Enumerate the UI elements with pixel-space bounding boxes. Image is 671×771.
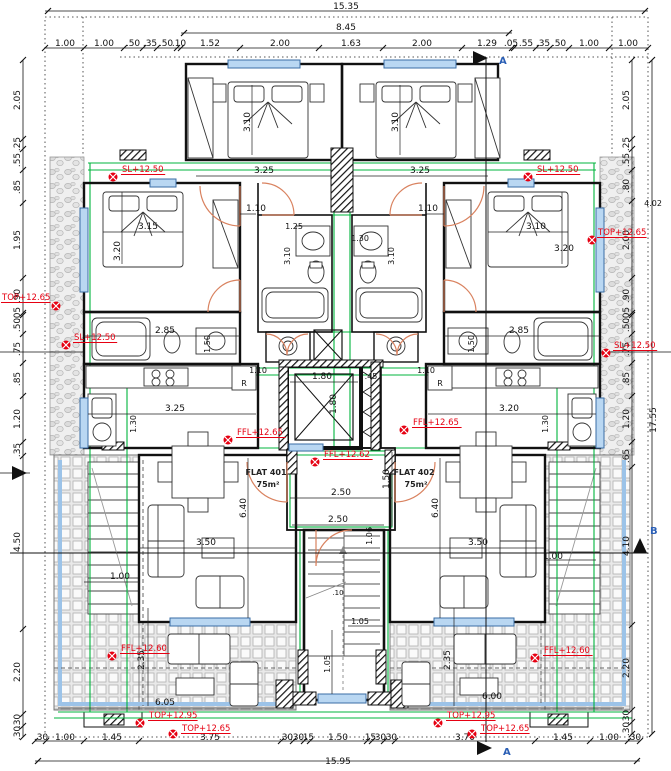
label: 1.20 [13, 409, 23, 429]
label: FFL+12.60 [544, 646, 590, 656]
label: .30 [383, 733, 398, 743]
floor-plan-page: 15.358.4515.9517.554.021.001.00.50.35.50… [0, 0, 671, 771]
label: .85 [622, 372, 632, 386]
label: 3.20 [554, 244, 574, 254]
section-marker [12, 466, 27, 480]
label: .10 [172, 39, 187, 49]
label: R [437, 379, 443, 388]
label: FLAT 401 [245, 468, 287, 477]
label: 6.05 [155, 698, 175, 708]
level-marker: FFL+12.65 [224, 428, 286, 445]
label: 3.25 [254, 166, 274, 176]
label: 3.10 [526, 222, 546, 232]
label: .05 [504, 39, 518, 49]
label: .35 [13, 443, 23, 457]
label: 1.30 [129, 415, 138, 433]
label: 3.10 [243, 112, 253, 132]
label: 1.95 [13, 230, 23, 250]
label: A [503, 747, 511, 758]
label: TOP+12.65 [1, 293, 50, 303]
label: .75 [13, 342, 23, 356]
label: 1.10 [246, 204, 266, 214]
label: SL+12.50 [74, 333, 116, 343]
label: .50 [622, 318, 632, 333]
label: 1.10 [249, 366, 267, 375]
label: .85 [13, 372, 23, 386]
label: 1.29 [477, 39, 497, 49]
label: SL+12.50 [122, 165, 164, 175]
label: 6.00 [482, 692, 502, 702]
label: 2.85 [155, 326, 175, 336]
label: .15 [300, 733, 314, 743]
label: FFL+12.65 [237, 428, 283, 438]
label: 1.20 [622, 409, 632, 429]
label: 3.25 [410, 166, 430, 176]
label: 1.00 [110, 572, 130, 582]
label: .45 [365, 372, 378, 381]
label: 75m² [405, 480, 428, 489]
label: .55 [519, 39, 533, 49]
label: 1.50 [328, 733, 348, 743]
label: 2.05 [13, 90, 23, 110]
level-marker: SL+12.50 [524, 165, 581, 182]
label: 1.00 [618, 39, 638, 49]
label: 1.52 [200, 39, 220, 49]
label: A [499, 56, 507, 67]
label: FLAT 402 [393, 468, 434, 477]
section-marker: B [633, 526, 658, 553]
label: 1.05 [323, 655, 332, 673]
label: .35 [143, 39, 157, 49]
level-marker: TOP+12.65 [468, 724, 530, 739]
label: 1.00 [55, 39, 75, 49]
label: 1.80 [329, 394, 339, 414]
label: 4.02 [644, 199, 662, 208]
floor-plan-drawing: 15.358.4515.9517.554.021.001.00.50.35.50… [0, 0, 671, 771]
label: 2.05 [622, 90, 632, 110]
label: 3.20 [113, 241, 123, 261]
label: .55 [13, 153, 23, 167]
label: 1.06 [365, 527, 374, 545]
label: .50 [13, 318, 23, 333]
label: 1.00 [599, 733, 619, 743]
label: 15.35 [333, 2, 359, 12]
label: 2.20 [13, 662, 23, 682]
label: 6.40 [239, 498, 249, 518]
label: .35 [536, 39, 550, 49]
label: 3.15 [138, 222, 158, 232]
label: .90 [622, 289, 632, 304]
exterior-stair-left [88, 462, 139, 614]
label: 3.50 [468, 538, 488, 548]
label: 2.50 [328, 515, 348, 525]
label: .30 [622, 722, 632, 737]
label: 1.45 [553, 733, 573, 743]
label: .25 [13, 137, 23, 151]
label: 1.30 [541, 415, 550, 433]
label: .65 [622, 449, 632, 463]
label: TOP+12.65 [597, 228, 646, 238]
label: .30 [13, 726, 23, 741]
label: TOP+12.95 [148, 711, 197, 721]
section-marker: A [477, 741, 511, 758]
level-marker: FFL+12.65 [400, 418, 462, 435]
label: 3.75 [200, 733, 220, 743]
label: SL+12.50 [614, 341, 656, 351]
label: TOP+12.95 [446, 711, 495, 721]
label: 1.10 [418, 204, 438, 214]
label: 3.10 [387, 247, 396, 265]
label: 3.10 [283, 247, 292, 265]
label: 1.50 [467, 335, 476, 353]
label: 1.00 [579, 39, 599, 49]
label: 6.40 [431, 498, 441, 518]
label: 2.00 [270, 39, 290, 49]
label: 1.00 [55, 733, 75, 743]
label: 4.50 [13, 532, 23, 552]
label: 2.50 [331, 488, 351, 498]
label: 1.25 [285, 222, 303, 231]
label: 3.20 [499, 404, 519, 414]
label: 75m² [257, 480, 280, 489]
label: 8.45 [336, 23, 356, 33]
label: 1.63 [341, 39, 361, 49]
label: 2.00 [412, 39, 432, 49]
label: 2.35 [443, 650, 453, 670]
label: 2.20 [622, 658, 632, 678]
level-marker: FFL+12.62 [311, 450, 373, 467]
label: 15.95 [325, 757, 351, 767]
label: 1.10 [417, 366, 435, 375]
label: SL+12.50 [537, 165, 579, 175]
label: TOP+12.65 [480, 724, 529, 734]
label: 1.00 [94, 39, 114, 49]
label: FFL+12.62 [324, 450, 370, 460]
label: 1.00 [543, 552, 563, 562]
label: 1.80 [312, 372, 332, 382]
label: 3.50 [196, 538, 216, 548]
label: 1.30 [351, 234, 369, 243]
label: FFL+12.65 [413, 418, 459, 428]
label: .10 [332, 589, 343, 597]
label: 2.85 [509, 326, 529, 336]
label: 1.50 [203, 335, 212, 353]
label: TOP+12.65 [181, 724, 230, 734]
label: .30 [34, 733, 49, 743]
label: 3.10 [391, 112, 401, 132]
label: FFL+12.60 [121, 644, 167, 654]
label: .80 [622, 179, 632, 194]
label: .55 [622, 153, 632, 167]
label: .85 [13, 180, 23, 194]
label: 4.10 [622, 536, 632, 556]
label: .50 [552, 39, 567, 49]
label: 1.05 [351, 617, 369, 626]
label: B [650, 526, 658, 537]
label: 1.50 [382, 469, 392, 489]
label: .50 [126, 39, 141, 49]
label: .25 [622, 137, 632, 151]
label: R [241, 379, 247, 388]
label: 3.25 [165, 404, 185, 414]
label: 17.55 [649, 407, 659, 433]
label: 1.45 [102, 733, 122, 743]
